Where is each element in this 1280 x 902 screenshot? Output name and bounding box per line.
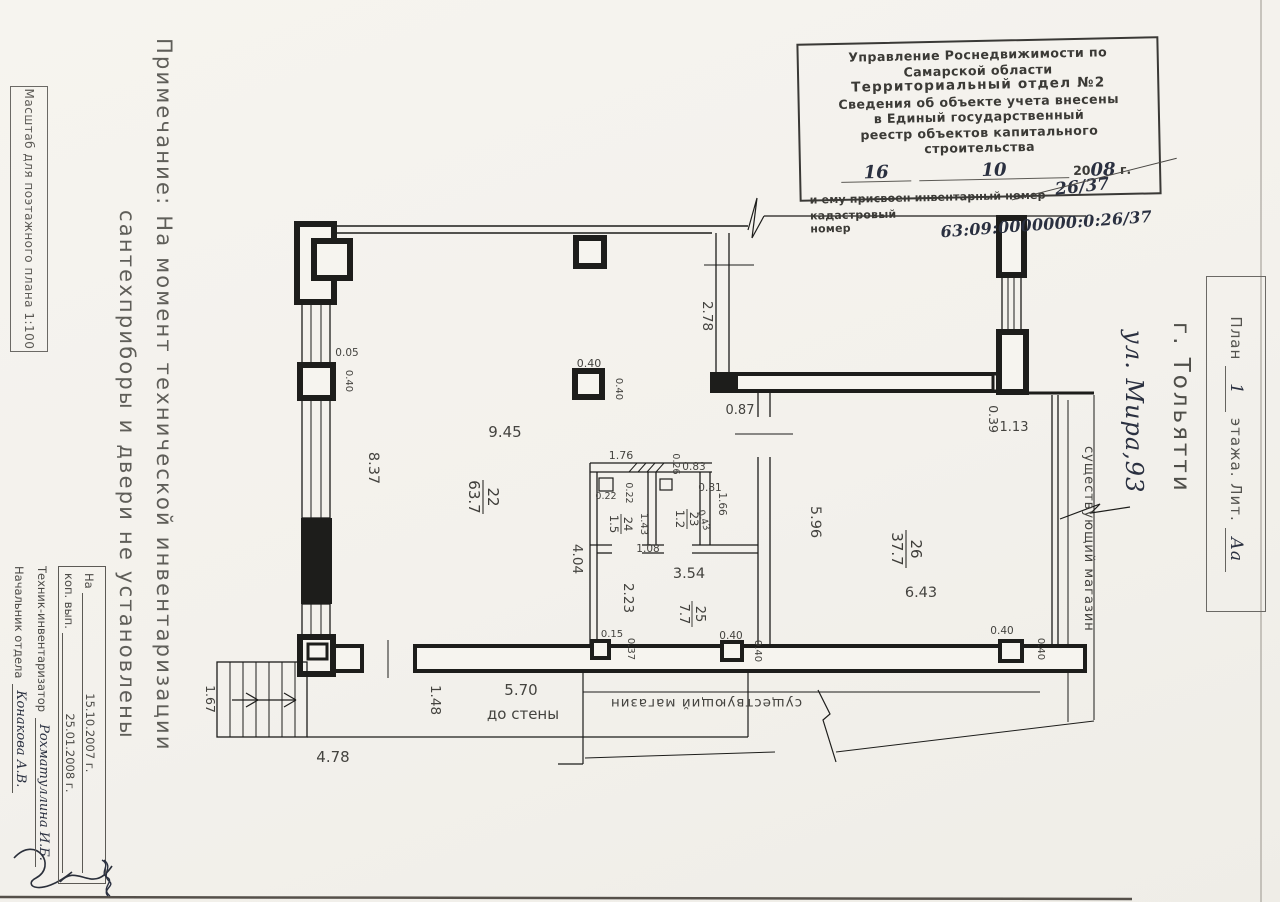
exec-row1-date: 15.10.2007 г. xyxy=(82,593,97,873)
svg-text:63.7: 63.7 xyxy=(465,480,483,513)
plan-title-letter: Аа xyxy=(1226,528,1247,572)
duct xyxy=(660,479,672,490)
svg-text:24: 24 xyxy=(621,517,635,532)
dim: 0.40 xyxy=(752,640,763,662)
svg-text:7.7: 7.7 xyxy=(676,604,691,625)
svg-text:37.7: 37.7 xyxy=(888,532,906,565)
wall-solid xyxy=(301,518,332,604)
stamp-day-handwritten: 16 xyxy=(863,161,888,183)
dim: 1.48 xyxy=(427,685,443,715)
svg-text:26: 26 xyxy=(907,539,925,558)
dim: 1.08 xyxy=(636,543,659,555)
plan-walls xyxy=(217,198,1130,764)
exec-row4-label: Начальник отдела xyxy=(12,566,26,678)
note-line-2: сантехприборы и двери не установлены xyxy=(108,38,145,822)
dim: 0.05 xyxy=(335,347,358,359)
dim: 5.96 xyxy=(807,506,823,538)
dim: 0.83 xyxy=(682,461,705,473)
room-25-label: 25 7.7 xyxy=(676,601,707,627)
dimension-labels: 9.45 0.05 0.40 1.76 0.83 0.22 0.81 1.08 … xyxy=(203,301,1096,766)
plan-title-box: План 1 этажа. Лит. Аа xyxy=(1206,276,1266,612)
duct xyxy=(599,478,613,491)
executor-dates-table: На 15.10.2007 г. коп. вып. 25.01.2008 г. xyxy=(58,566,106,884)
street-label: ул. Мира,93 xyxy=(1110,330,1148,570)
window xyxy=(302,604,330,637)
head-signature-name: Конакова А.В. xyxy=(12,684,28,793)
dim: 4.78 xyxy=(316,748,349,766)
column xyxy=(314,241,350,278)
city-label-text: г. Тольятти xyxy=(1158,322,1194,534)
city-label: г. Тольятти xyxy=(1158,322,1194,534)
note-block: Примечание: На момент технической инвент… xyxy=(108,38,182,822)
room-26-label: 26 37.7 xyxy=(888,530,925,568)
room-24-label: 24 1.5 xyxy=(607,514,635,534)
dim: 2.23 xyxy=(620,583,636,613)
dim: 3.54 xyxy=(673,566,705,582)
svg-text:1.2: 1.2 xyxy=(673,510,687,528)
room-22-label: 22 63.7 xyxy=(465,480,502,514)
column xyxy=(300,365,333,398)
dim: 0.87 xyxy=(726,403,755,418)
dim: 1.13 xyxy=(1000,420,1029,435)
dim: 1.67 xyxy=(203,685,218,713)
dim: 9.45 xyxy=(488,423,521,441)
break-mark xyxy=(818,690,836,762)
registry-stamp: Управление Роснедвижимости по Самарской … xyxy=(796,36,1161,202)
window xyxy=(1002,275,1021,332)
note-line-1: Примечание: На момент технической инвент… xyxy=(145,38,182,822)
stairs xyxy=(217,662,307,737)
svg-text:25: 25 xyxy=(692,606,707,623)
window xyxy=(302,398,330,518)
stamp-text-line-3: реестр объектов капитального строительст… xyxy=(808,121,1151,159)
svg-text:1.5: 1.5 xyxy=(607,515,621,533)
column xyxy=(1000,641,1022,661)
scale-box: Масштаб для поэтажного плана 1:100 xyxy=(10,86,48,352)
column xyxy=(575,371,602,397)
scale-box-text: Масштаб для поэтажного плана 1:100 xyxy=(11,87,47,351)
dim: 1.43 xyxy=(638,513,649,535)
column xyxy=(722,642,742,660)
dim: 8.37 xyxy=(365,452,381,484)
existing-shop-label-bottom: существующий магазин xyxy=(610,695,802,711)
dim: 0.40 xyxy=(990,625,1013,637)
technician-signature-name: Рохматуллина И.Б. xyxy=(35,718,51,867)
exec-row3-label: Техник-инвентаризатор xyxy=(35,566,49,712)
column xyxy=(576,238,604,266)
dim: 0.40 xyxy=(1035,638,1046,660)
plan-title-floor-number: 1 xyxy=(1226,366,1247,412)
signature-icon xyxy=(96,858,114,898)
dim: 0.40 xyxy=(343,370,354,392)
dim: 2.78 xyxy=(699,301,715,331)
window xyxy=(302,302,330,365)
dim: 0.37 xyxy=(625,638,636,660)
plan-title-prefix: План xyxy=(1227,316,1245,360)
dim: 1.66 xyxy=(716,492,728,516)
column xyxy=(999,332,1026,392)
wall-corner xyxy=(712,372,738,393)
dim: 0.40 xyxy=(577,357,602,370)
break-mark xyxy=(748,198,764,238)
executor-box: На 15.10.2007 г. коп. вып. 25.01.2008 г.… xyxy=(10,566,106,884)
to-wall-label: до стены xyxy=(487,705,559,723)
dim: 0.40 xyxy=(719,630,742,642)
dim: 0.39 xyxy=(986,405,1001,433)
dim: 1.76 xyxy=(609,449,634,462)
dim: 6.43 xyxy=(905,585,937,601)
exec-row1-label: На xyxy=(82,573,96,589)
dim: 0.26 xyxy=(670,453,681,474)
dim: 5.70 xyxy=(504,681,537,699)
exec-row2-label: коп. вып. xyxy=(62,573,76,629)
dim: 0.15 xyxy=(601,629,623,640)
existing-shop-label-right: существующий магазин xyxy=(1081,446,1096,632)
dim: 0.40 xyxy=(613,378,624,400)
stamp-cadastre-label: кадастровый номер xyxy=(810,207,933,236)
dim: 0.22 xyxy=(623,482,634,503)
column xyxy=(592,641,609,658)
svg-text:22: 22 xyxy=(484,487,502,506)
exec-row2-date: 25.01.2008 г. xyxy=(62,633,77,873)
stamp-month-handwritten: 10 xyxy=(981,159,1006,181)
column-inner xyxy=(308,644,327,659)
plan-title-mid: этажа. Лит. xyxy=(1227,418,1245,522)
vent-shaft-hatch xyxy=(629,463,664,472)
dim: 0.22 xyxy=(595,491,616,502)
scanned-floorplan-page: 22 63.7 23 1.2 24 1.5 25 7.7 26 xyxy=(0,0,1280,902)
street-label-text: ул. Мира,93 xyxy=(1110,330,1148,570)
dim: 4.04 xyxy=(569,544,585,574)
